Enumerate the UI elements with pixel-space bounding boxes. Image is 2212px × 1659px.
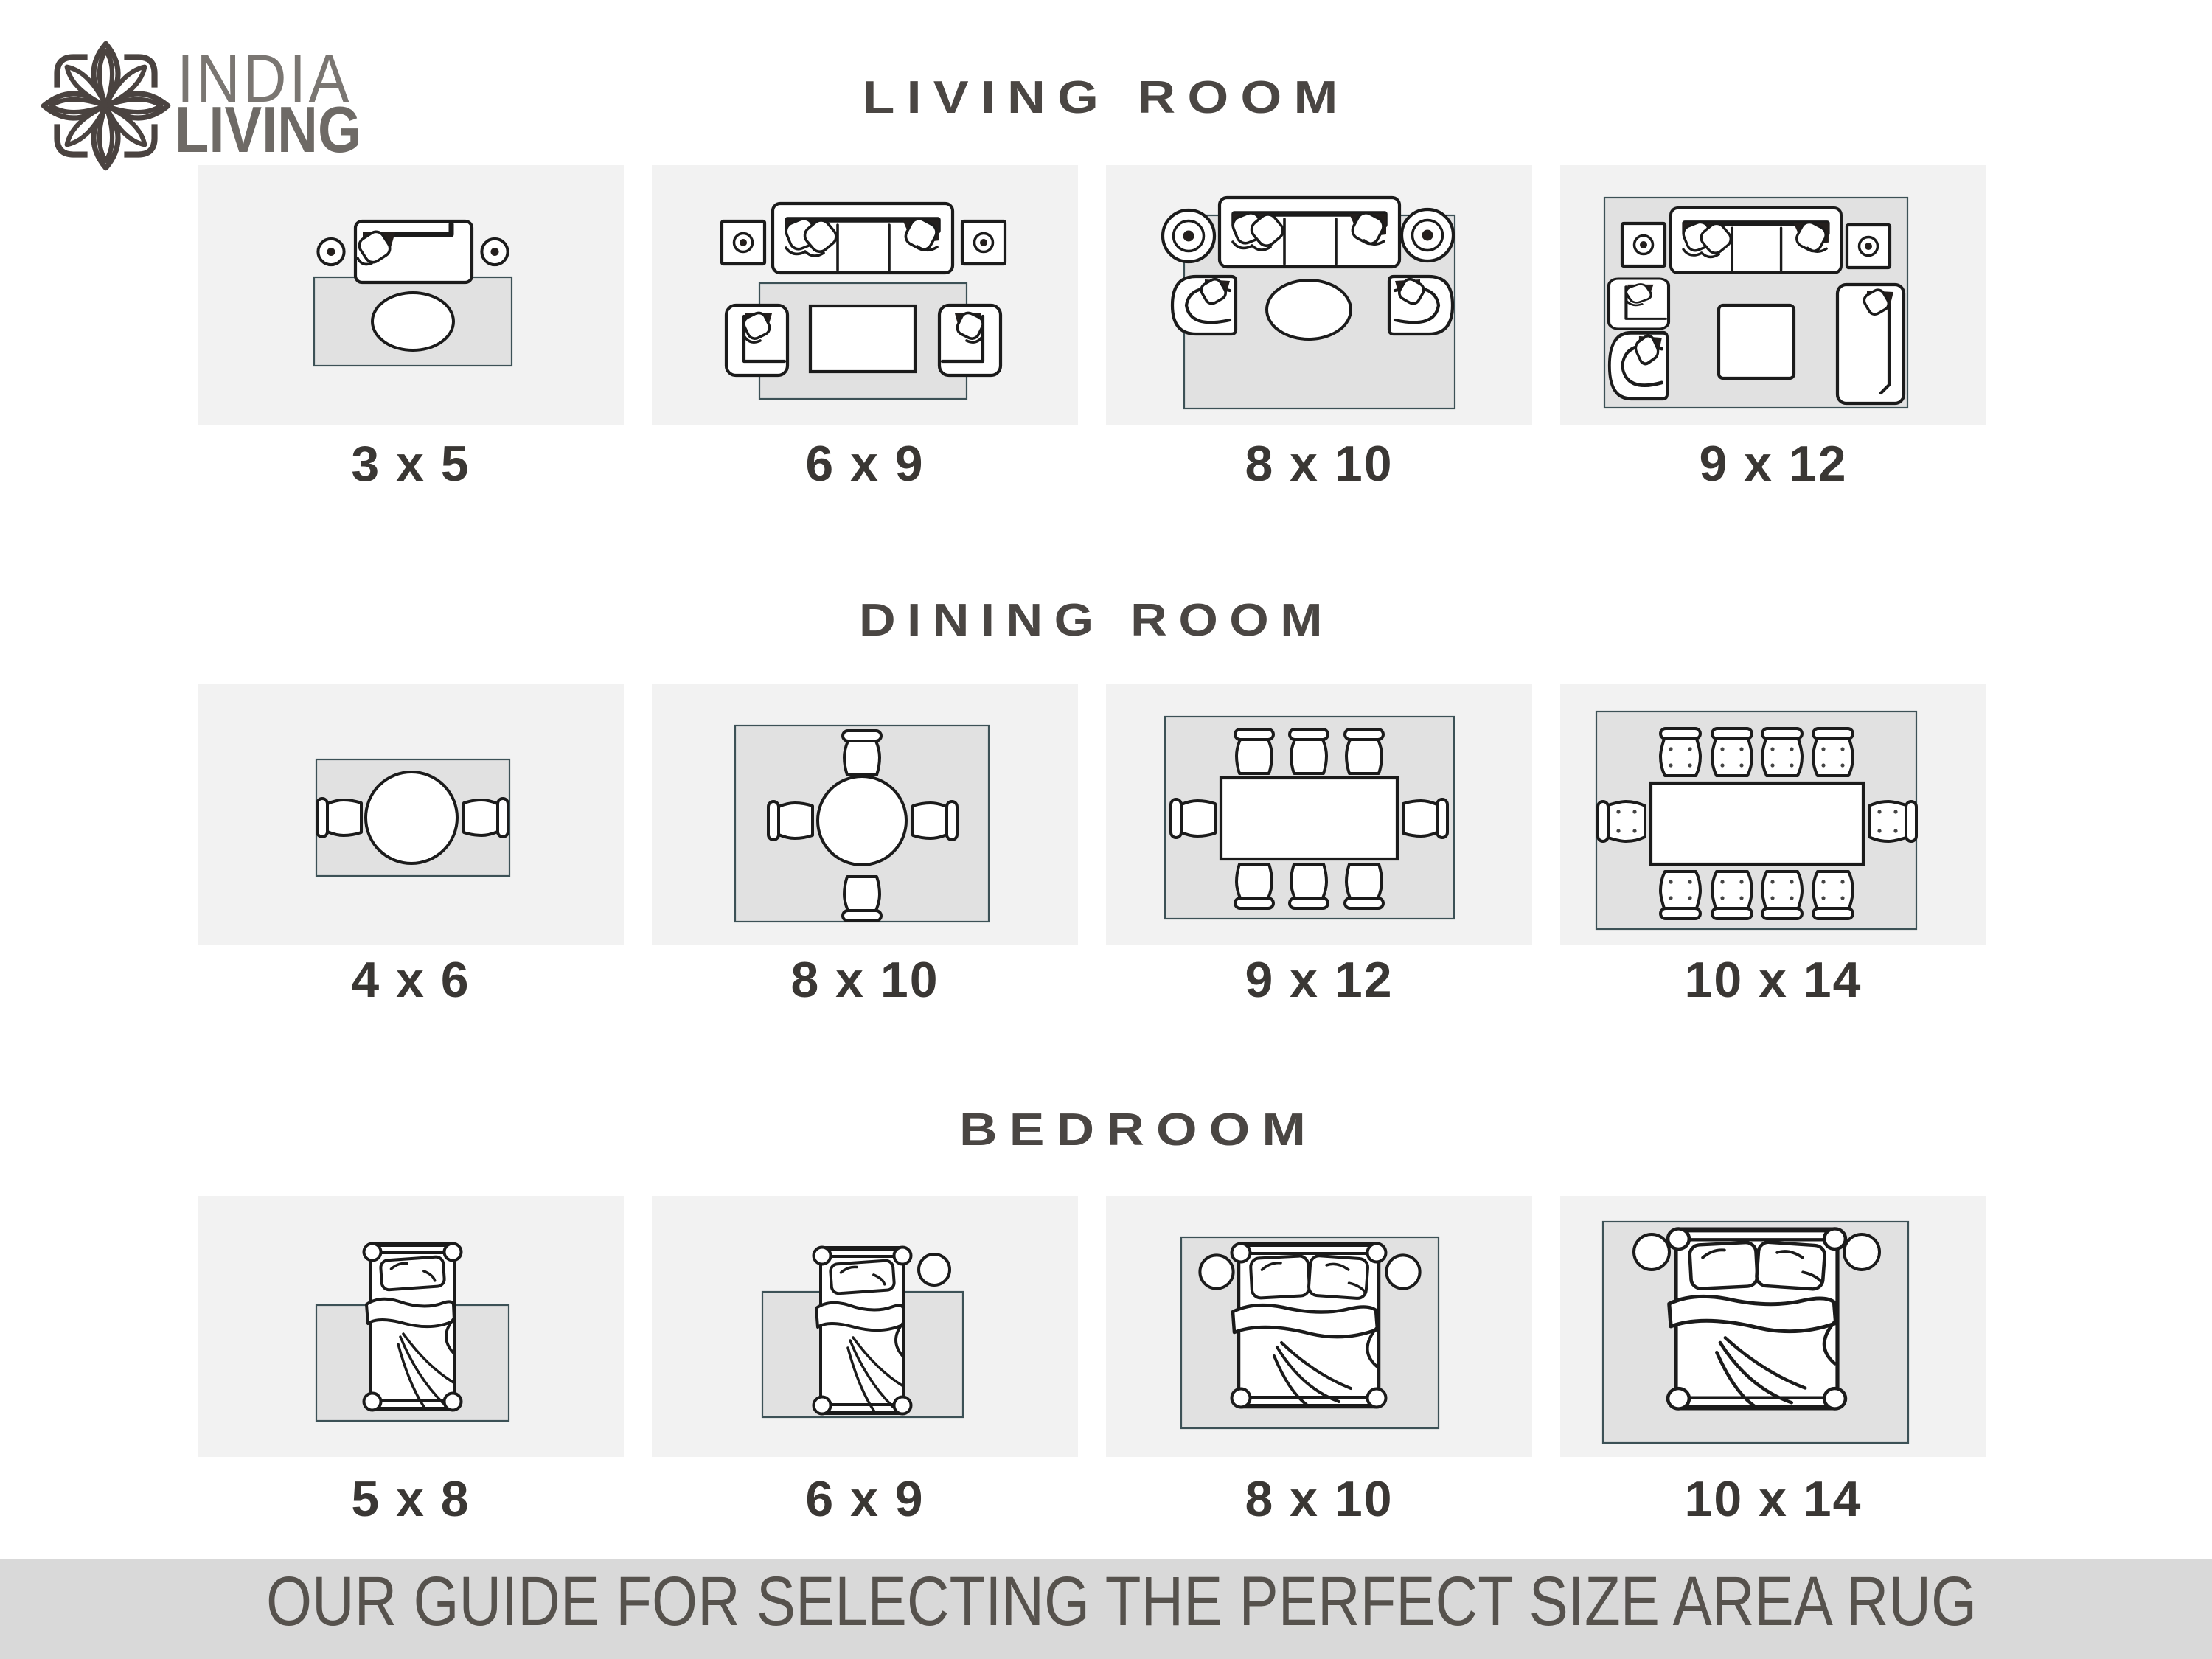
svg-text:8 x 10: 8 x 10 — [1245, 436, 1393, 492]
svg-text:5 x 8: 5 x 8 — [351, 1471, 470, 1527]
svg-text:4 x 6: 4 x 6 — [351, 952, 470, 1008]
svg-text:8 x 10: 8 x 10 — [1245, 1471, 1393, 1527]
svg-text:BEDROOM: BEDROOM — [959, 1105, 1318, 1155]
svg-text:LIVING: LIVING — [175, 93, 361, 166]
svg-text:LIVING ROOM: LIVING ROOM — [863, 72, 1350, 123]
svg-text:10 x 14: 10 x 14 — [1685, 1471, 1863, 1527]
svg-text:6 x 9: 6 x 9 — [805, 436, 924, 492]
svg-text:6 x 9: 6 x 9 — [805, 1471, 924, 1527]
svg-text:8 x 10: 8 x 10 — [790, 952, 939, 1008]
svg-text:9 x 12: 9 x 12 — [1699, 436, 1847, 492]
svg-text:9 x 12: 9 x 12 — [1245, 952, 1393, 1008]
svg-text:OUR GUIDE FOR SELECTING THE PE: OUR GUIDE FOR SELECTING THE PERFECT SIZE… — [266, 1562, 1977, 1641]
svg-text:DINING ROOM: DINING ROOM — [859, 595, 1334, 646]
svg-text:3 x 5: 3 x 5 — [351, 436, 470, 492]
svg-text:10 x 14: 10 x 14 — [1685, 952, 1863, 1008]
